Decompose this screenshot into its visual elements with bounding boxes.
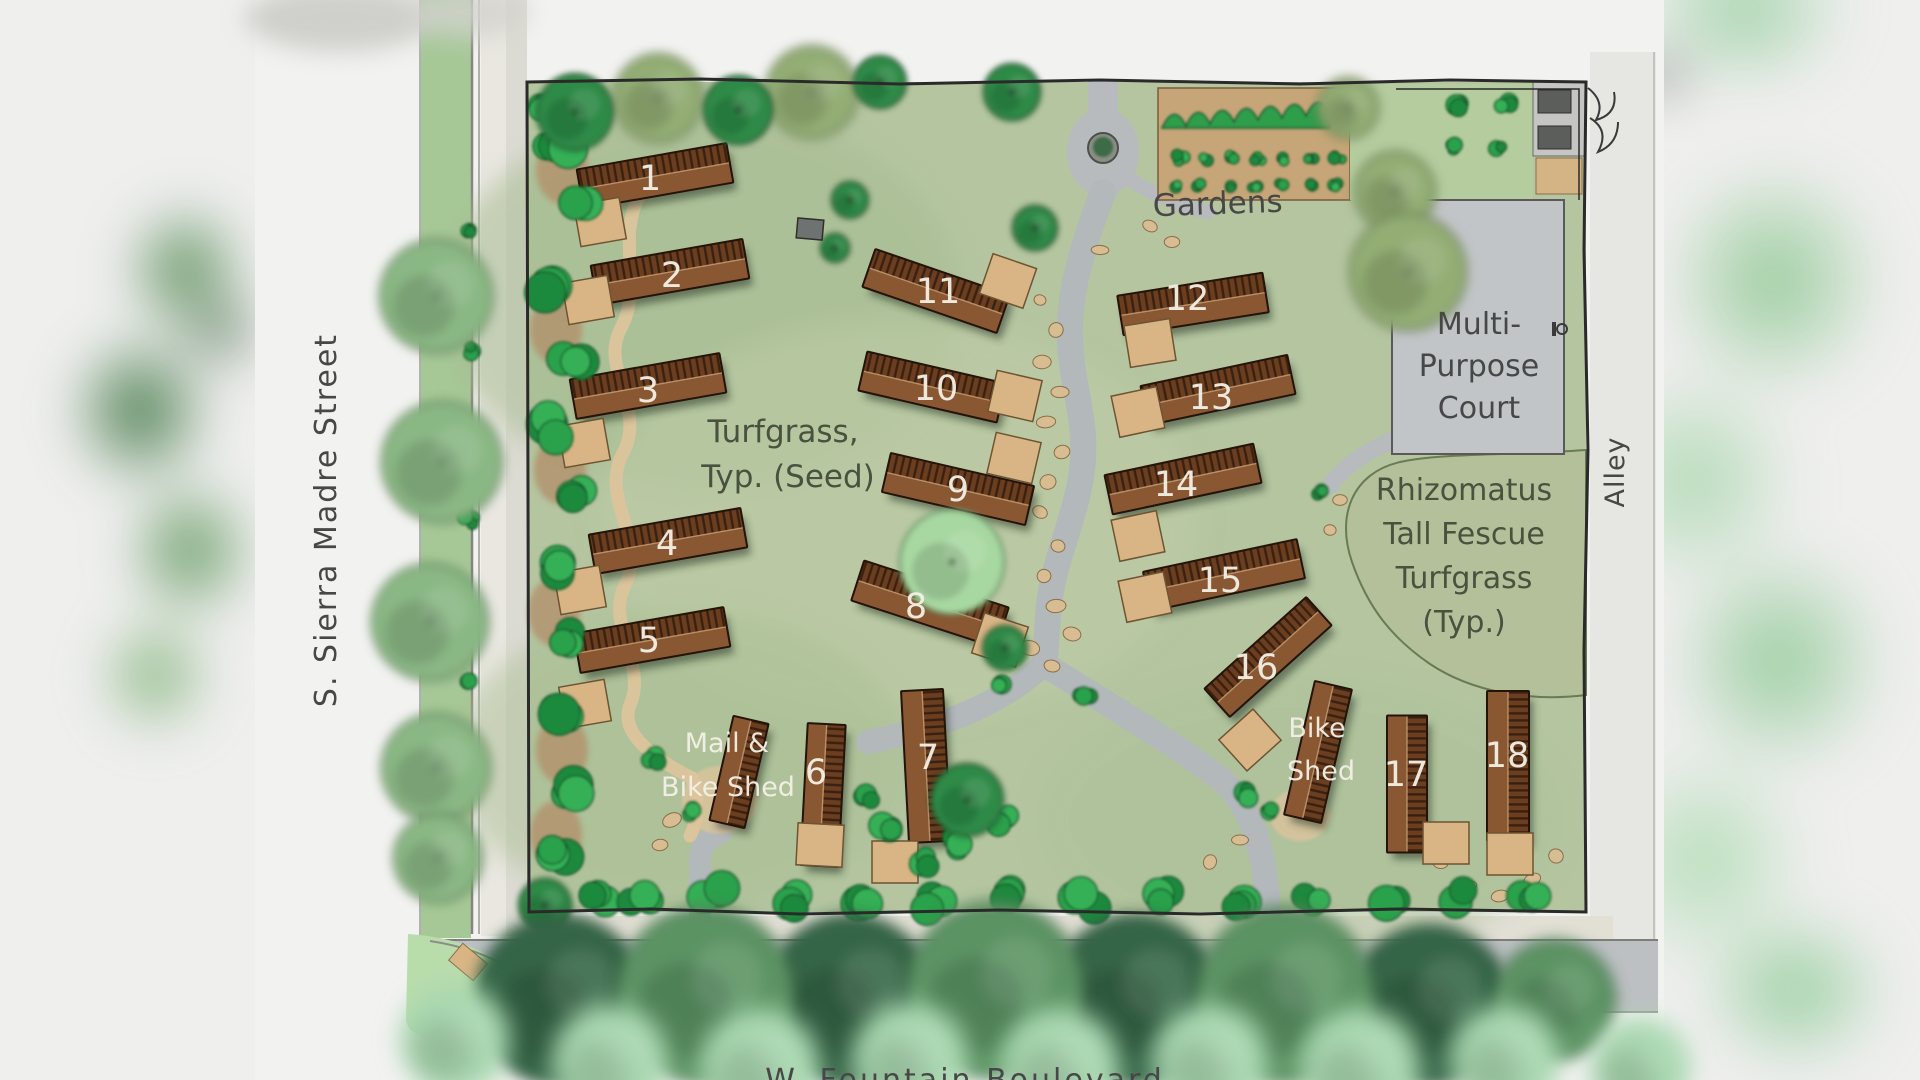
tree [984,64,1040,120]
shrub-cluster [1507,881,1551,912]
fescue-label-1: Rhizomatus [1376,473,1552,508]
tree [931,764,1003,836]
stepping-stone [1164,236,1180,247]
tree [832,182,868,218]
shrub-cluster [540,545,575,589]
building-number-16: 16 [1234,648,1279,688]
court-label-3: Court [1438,391,1521,426]
building-number-18: 18 [1485,736,1530,776]
court-label-2: Purpose [1419,349,1539,384]
patio [1124,319,1176,368]
tree [372,564,488,680]
patio [1487,833,1533,875]
patio [1423,822,1469,864]
court-label-1: Multi- [1437,307,1521,342]
patio [796,823,844,867]
building-number-6: 6 [805,753,827,793]
tree [537,74,613,150]
shrub-cluster [460,673,477,689]
bike-shed-label-2: Shed [1287,756,1355,787]
tree [821,234,849,262]
fescue-label-2: Tall Fescue [1382,517,1545,552]
turfgrass-label-2: Typ. (Seed) [700,459,875,495]
building-number-9: 9 [947,470,969,510]
stepping-stone [1091,245,1109,255]
shrub-cluster [1446,95,1468,117]
shrub-cluster [1073,687,1097,705]
shrub-cluster [992,675,1011,693]
patio [1118,572,1172,623]
stepping-stone [1333,494,1348,505]
street-label-alley: Alley [1600,436,1631,507]
fescue-label-4: (Typ.) [1422,605,1505,640]
street-label-left: S. Sierra Madre Street [309,333,344,707]
site-plan-image: S. Sierra Madre Street Alley W. Fountain… [0,0,1920,1080]
building-number-15: 15 [1198,561,1243,601]
building-number-3: 3 [637,371,659,411]
building-number-4: 4 [656,524,678,564]
street-label-bottom: W. Fountain Boulevard [765,1063,1165,1080]
stepping-stone [1232,835,1249,845]
building-number-17: 17 [1384,755,1429,795]
tree [382,402,502,522]
turfgrass-label-1: Turfgrass, [706,414,858,450]
building-number-8: 8 [905,587,927,627]
shrub-cluster [1304,154,1319,164]
building-number-5: 5 [638,621,660,661]
utility-shed [796,218,824,240]
tree [704,76,772,144]
tree [1318,78,1378,138]
building-number-12: 12 [1165,279,1210,319]
building-number-11: 11 [916,272,961,312]
patio [1111,387,1165,438]
fescue-label-3: Turfgrass [1395,561,1533,596]
tree [380,240,492,352]
patio [1111,511,1165,562]
stepping-stone [1033,355,1052,369]
mail-shed-label-1: Mail & [685,728,769,759]
tree [983,626,1027,670]
shrub-cluster [552,766,594,812]
gardens-label: Gardens [1152,184,1283,225]
mail-shed-label-2: Bike Shed [661,772,795,803]
stepping-stone [1051,386,1069,398]
tree [394,814,482,902]
tree [766,46,858,138]
building-number-7: 7 [917,738,939,778]
tree [1013,206,1057,250]
tree [614,54,702,142]
building-number-10: 10 [914,369,959,409]
building-number-14: 14 [1154,465,1199,505]
site-plan-drawing: S. Sierra Madre Street Alley W. Fountain… [0,0,1920,1080]
building-number-2: 2 [661,256,683,296]
shrub-cluster [461,224,476,238]
tree [382,714,490,822]
bike-shed-label-1: Bike [1288,713,1345,744]
shrub-cluster [559,186,603,220]
building-number-1: 1 [639,159,661,199]
building-number-13: 13 [1189,378,1234,418]
